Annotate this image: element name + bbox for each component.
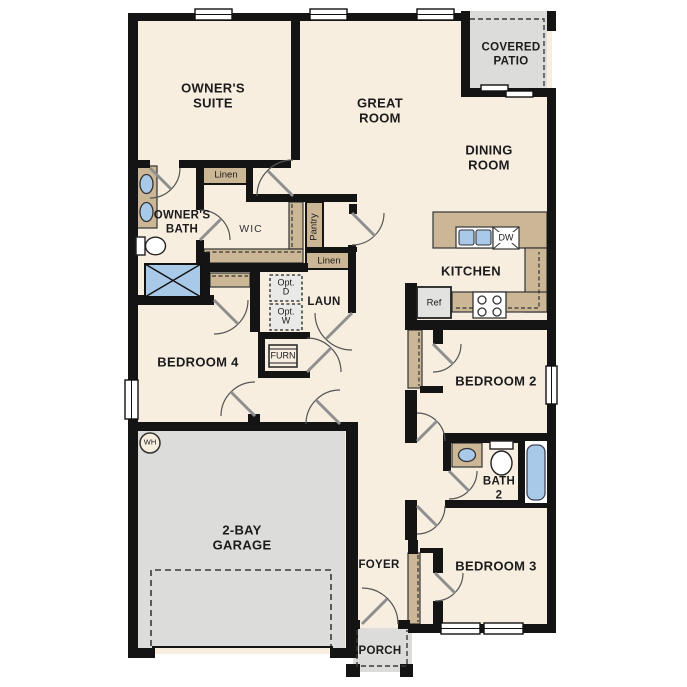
label-owners-bath: OWNER'S BATH (154, 209, 211, 236)
kitchen-sink-icon (456, 227, 493, 248)
shower-icon (145, 264, 201, 297)
label-laundry: LAUN (307, 296, 340, 310)
wall-furn-bottom (258, 371, 310, 378)
wall-laundry-left (250, 272, 260, 332)
label-great-room: GREAT ROOM (357, 96, 403, 127)
label-porch: PORCH (358, 645, 401, 659)
wall-suite-bath-1 (128, 160, 150, 168)
label-dishwasher: DW (498, 233, 515, 242)
label-water-heater: WH (144, 439, 157, 448)
label-opt-dryer: Opt. D (277, 279, 294, 298)
window (125, 380, 138, 419)
label-refrigerator: Ref (427, 297, 442, 308)
wall-patio-corner (547, 11, 556, 31)
wall-linen-side (246, 168, 253, 198)
wall-bedroom2-closet-jamb (433, 330, 443, 344)
bedroom2-closet-rod (408, 330, 422, 388)
label-garage: 2-BAY GARAGE (213, 523, 272, 554)
wall-suite-greatroom (291, 21, 300, 160)
sliding-door-panel (506, 91, 533, 97)
label-dining-room: DINING ROOM (465, 143, 512, 174)
floor-plan: OWNER'S SUITE GREAT ROOM COVERED PATIO D… (0, 0, 687, 687)
window (417, 9, 454, 20)
wall-ref-stub (405, 283, 417, 323)
wall-wic-left-upper (196, 160, 204, 210)
window (484, 623, 523, 634)
stove-icon (473, 292, 506, 318)
wall-laundry-right (348, 245, 356, 313)
wall-hall-bedroom3 (405, 500, 417, 540)
label-kitchen: KITCHEN (441, 263, 501, 278)
label-bedroom-2: BEDROOM 2 (455, 373, 536, 388)
label-bedroom-3: BEDROOM 3 (455, 558, 536, 573)
label-linen-1: Linen (214, 169, 237, 180)
wic-rod-bottom (204, 249, 303, 263)
label-furnace: FURN (271, 351, 296, 360)
bath-sink-icon (140, 203, 153, 222)
bathtub-icon (525, 441, 547, 503)
wall-bath2-left (443, 438, 451, 471)
wall-wic-pantry-top (246, 194, 357, 202)
wall-wic-bottom (196, 263, 308, 272)
label-wic: WIC (239, 223, 262, 235)
wall-garage-right (346, 422, 358, 658)
bath-sink-icon (140, 175, 153, 194)
label-bath-2: BATH 2 (483, 475, 515, 502)
label-owners-suite: OWNER'S SUITE (181, 81, 245, 112)
floor-plan-drawing (0, 0, 687, 687)
wall-greatroom-patio (461, 11, 470, 97)
bath2-sink-icon (459, 449, 476, 462)
wall-porch-stub-2 (398, 620, 410, 629)
wall-exterior-right (547, 88, 556, 633)
wall-bedroom3-closet-jamb-bottom (433, 601, 443, 624)
sliding-door-panel (481, 85, 508, 91)
wall-bedroom3-closet-jamb-top (433, 548, 443, 573)
wall-bedroom2-closet-cap (420, 386, 443, 393)
window (441, 623, 480, 634)
label-covered-patio: COVERED PATIO (482, 41, 541, 68)
wall-kitchen-bedroom2 (405, 320, 547, 330)
garage-door-sill (152, 646, 333, 648)
wall-suite-bath-2 (179, 160, 291, 168)
wall-hall-bedroom2 (405, 390, 417, 443)
toilet-icon (136, 237, 166, 255)
toilet-icon (490, 441, 513, 475)
wall-garage-top (128, 422, 358, 431)
label-pantry: Pantry (308, 213, 319, 240)
wall-foyer-stub (408, 540, 418, 554)
window (195, 9, 232, 20)
label-opt-washer: Opt. W (277, 308, 294, 327)
bedroom4-closet-rod (210, 273, 250, 287)
label-foyer: FOYER (358, 559, 399, 573)
wall-tub-side (518, 440, 525, 504)
wall-garage-bottom-left (128, 648, 155, 658)
window (546, 366, 557, 404)
label-linen-2: Linen (317, 255, 340, 266)
label-bedroom-4: BEDROOM 4 (157, 354, 238, 369)
window (310, 9, 347, 20)
wall-furn-left (258, 332, 265, 378)
wall-exterior-bottom-right (408, 624, 556, 633)
wic-rod-right (289, 202, 303, 249)
wall-furn-top (258, 332, 310, 339)
wall-exterior-left (128, 13, 138, 658)
